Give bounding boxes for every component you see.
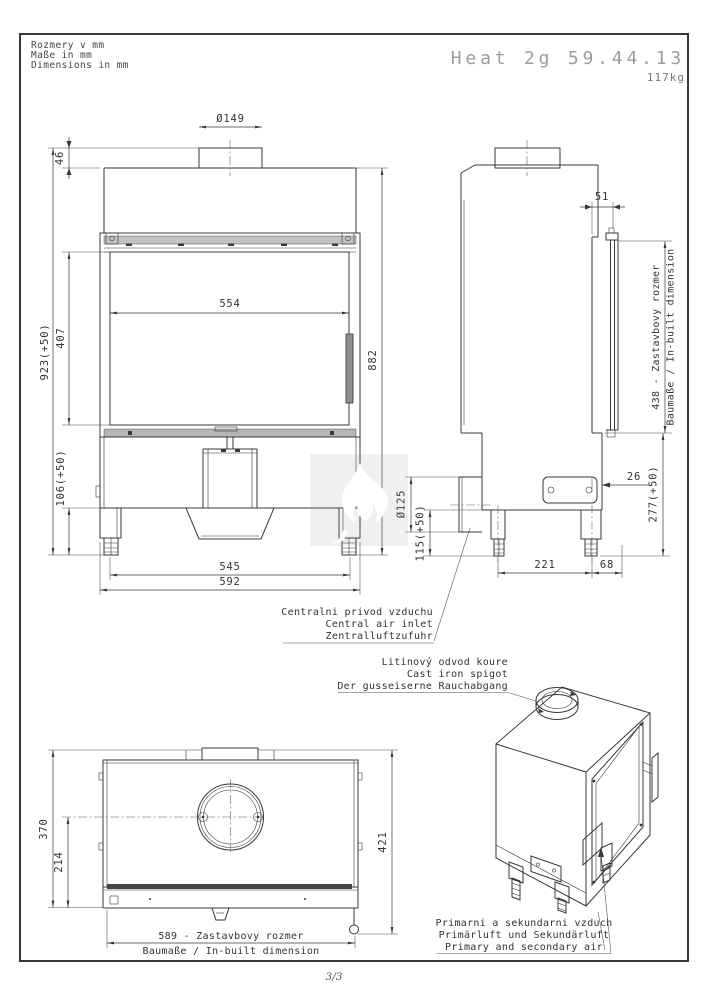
note-flue-spigot-line2: Cast iron spigot xyxy=(407,669,508,680)
dim-plan-overall-depth: 421 xyxy=(377,831,389,852)
dim-plan-inbuilt-width-sub: Baumaße / In-built dimension xyxy=(143,946,320,957)
dim-plan-inbuilt-width: 589 - Zastavbovy rozmer xyxy=(158,931,303,942)
watermark xyxy=(310,454,408,546)
technical-drawing: Rozmery v mm Maße in mm Dimensions in mm… xyxy=(0,0,707,1000)
header: Rozmery v mm Maße in mm Dimensions in mm… xyxy=(31,40,685,84)
dim-side-plinth-height: 277(+50) xyxy=(648,466,660,523)
units-note-line3: Dimensions in mm xyxy=(31,60,129,71)
drawing-sheet: Rozmery v mm Maße in mm Dimensions in mm… xyxy=(0,0,707,1000)
note-primary-air-line3: Primary and secondary air xyxy=(445,942,603,953)
dim-front-body-height: 882 xyxy=(367,349,379,370)
note-central-air-line2: Central air inlet xyxy=(326,619,433,630)
label-side-inbuilt-depth: 438 - Zastavbovy rozmer xyxy=(651,264,662,409)
dim-plan-body-depth: 370 xyxy=(38,818,50,839)
dim-plan-flue-center-depth: 214 xyxy=(53,851,65,872)
iso-view xyxy=(496,687,658,913)
note-flue-spigot-line3: Der gusseiserne Rauchabgang xyxy=(337,681,508,692)
weight-label: 117kg xyxy=(647,71,685,84)
dim-side-rear-offset: 68 xyxy=(600,559,614,571)
dim-side-front-step: 26 xyxy=(627,471,641,483)
plan-view: 370 214 421 589 - Zastavbovy rozmer Baum… xyxy=(38,748,398,957)
note-primary-air-line2: Primärluft und Sekundärluft xyxy=(439,930,610,941)
dim-side-air-inlet-height: 115(+50) xyxy=(415,505,427,562)
note-central-air-line3: Zentralluftzufuhr xyxy=(326,631,433,642)
door-handle xyxy=(346,334,353,403)
dim-front-collar-height: 46 xyxy=(54,151,66,165)
dim-front-base-height: 106(+50) xyxy=(55,450,67,507)
note-primary-air-line1: Primarni a sekundarni vzduch xyxy=(436,918,613,929)
dim-front-overall-height: 923(+50) xyxy=(39,324,51,381)
note-flue-spigot: Litinový odvod koure Cast iron spigot De… xyxy=(337,656,536,701)
plan-view-geometry xyxy=(62,748,362,934)
side-view-dimensions: 51 438 - Zastavbovy rozmer Baumaße / In-… xyxy=(396,191,677,578)
iso-door-handle xyxy=(652,753,658,802)
side-view: 51 438 - Zastavbovy rozmer Baumaße / In-… xyxy=(396,140,677,578)
side-view-geometry xyxy=(450,140,618,562)
page-number: 3/3 xyxy=(326,971,343,983)
dim-side-feet-spacing: 221 xyxy=(534,559,555,571)
label-side-inbuilt-depth-sub: Baumaße / In-built dimension xyxy=(666,249,677,426)
dim-front-glass-width: 554 xyxy=(219,298,240,310)
dim-front-glass-height: 407 xyxy=(55,327,67,348)
note-central-air-line1: Centralni privod vzduchu xyxy=(281,607,433,618)
dim-side-top-offset: 51 xyxy=(595,191,609,203)
note-flue-spigot-line1: Litinový odvod koure xyxy=(382,656,508,668)
dim-front-overall-width: 592 xyxy=(219,576,240,588)
dim-front-flue-diameter: Ø149 xyxy=(216,113,245,125)
model-title: Heat 2g 59.44.13 xyxy=(451,48,685,69)
plan-view-dimensions: 370 214 421 589 - Zastavbovy rozmer Baum… xyxy=(38,750,398,957)
dim-front-feet-spacing: 545 xyxy=(219,561,240,573)
